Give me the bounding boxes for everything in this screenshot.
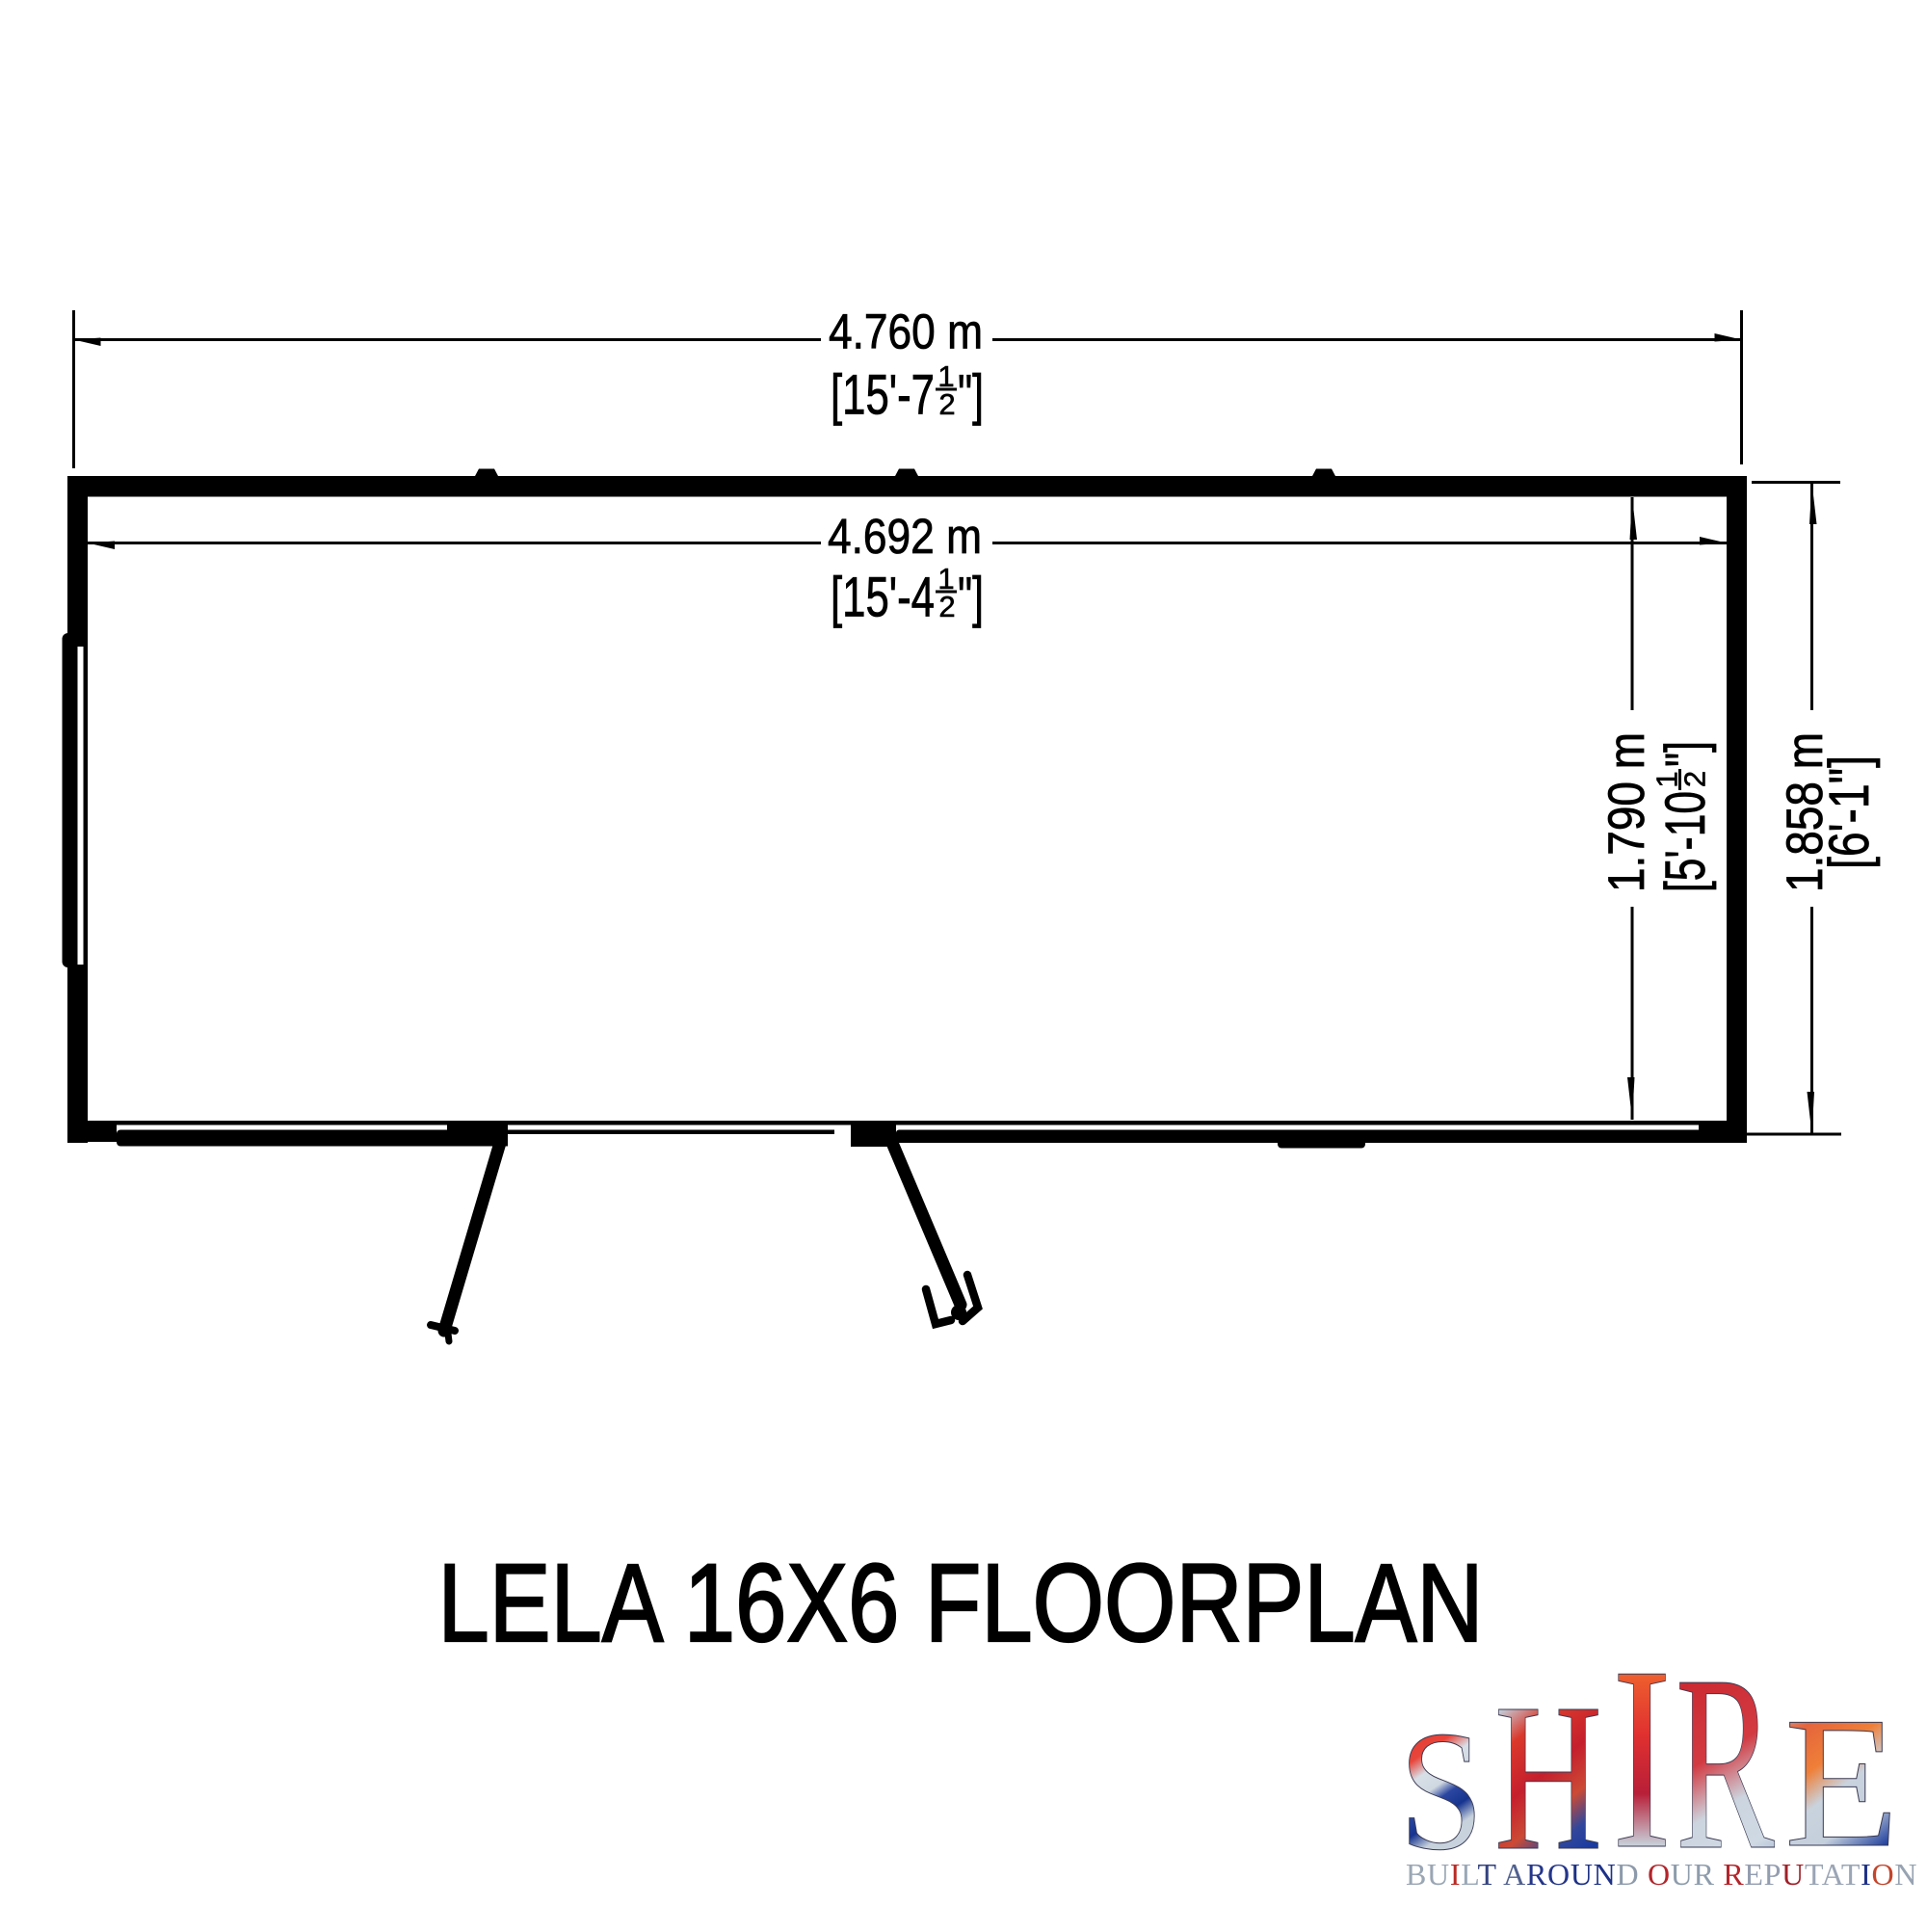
svg-text:[15'-7: [15'-7 [831, 364, 935, 427]
svg-text:2: 2 [938, 590, 955, 623]
svg-text:"]: "] [1654, 741, 1717, 767]
svg-text:[15'-4: [15'-4 [831, 567, 935, 629]
svg-text:BUILT AROUND OUR REPUTATION: BUILT AROUND OUR REPUTATION [1406, 1857, 1917, 1892]
svg-text:[5'-10: [5'-10 [1654, 791, 1717, 892]
svg-text:"]: "] [958, 364, 984, 427]
svg-text:E: E [1784, 1679, 1899, 1887]
svg-text:2: 2 [938, 387, 955, 421]
svg-text:"]: "] [958, 567, 984, 629]
svg-text:[6'-1"]: [6'-1"] [1818, 755, 1881, 869]
svg-text:2: 2 [1678, 771, 1712, 787]
svg-text:4.692 m: 4.692 m [828, 509, 982, 564]
svg-text:LELA 16X6 FLOORPLAN: LELA 16X6 FLOORPLAN [438, 1542, 1484, 1665]
svg-text:4.760 m: 4.760 m [829, 304, 983, 359]
svg-text:1.790 m: 1.790 m [1598, 732, 1655, 892]
